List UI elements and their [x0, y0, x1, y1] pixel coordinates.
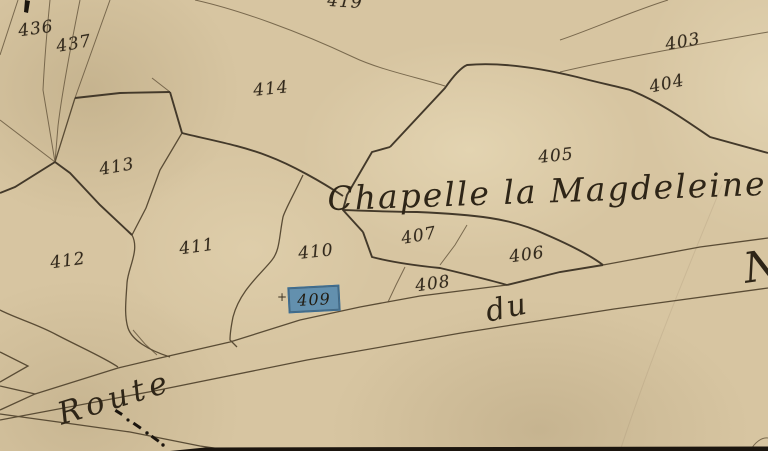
- boundary-411-410: [230, 175, 303, 347]
- parcel-label-410: 410: [297, 240, 334, 264]
- paper-crease: [620, 185, 722, 451]
- boundary-413-top: [75, 92, 170, 98]
- corner-tick-mark: [24, 0, 30, 13]
- strip-line: [0, 0, 18, 55]
- parcel-label-409: 409: [297, 289, 331, 310]
- boundary-413-right: [132, 133, 182, 235]
- limit-dash: [133, 422, 142, 430]
- branch-road-edge: [0, 414, 235, 451]
- boundary-413-414: [170, 92, 182, 133]
- road-fork-chevron: [0, 386, 35, 410]
- boundary-412-411: [126, 235, 170, 357]
- boundary-406-southeast: [507, 265, 603, 285]
- boundary-412-south: [0, 310, 118, 367]
- boundary-403-north: [560, 0, 668, 40]
- road-edge-upper: [35, 285, 507, 394]
- parcel-label-414: 414: [252, 77, 289, 101]
- bottom-edge-bar: [170, 447, 768, 451]
- highlighted-parcel[interactable]: 409: [287, 285, 340, 314]
- boundary-node-west: [0, 162, 55, 193]
- road-fork-chevron: [0, 352, 28, 382]
- limit-dot: [145, 431, 148, 434]
- boundary-419-414: [195, 0, 445, 86]
- boundary-405-south: [343, 210, 603, 265]
- boundary-407-406: [440, 225, 467, 265]
- strip-line: [55, 0, 80, 162]
- parcel-label-405: 405: [537, 144, 574, 168]
- boundary-414-south: [182, 133, 343, 196]
- boundary-stub: [152, 78, 170, 92]
- limit-dash: [151, 435, 160, 443]
- boundary-408-left: [388, 267, 405, 302]
- highlight-cross-marker: +: [277, 290, 287, 304]
- boundary-405-north: [390, 64, 768, 153]
- cadastral-map: 403 404 405 406 407 408 410 411 412 413 …: [0, 0, 768, 451]
- strip-line: [0, 120, 55, 162]
- limit-dot: [161, 443, 164, 446]
- limit-dot: [126, 418, 129, 421]
